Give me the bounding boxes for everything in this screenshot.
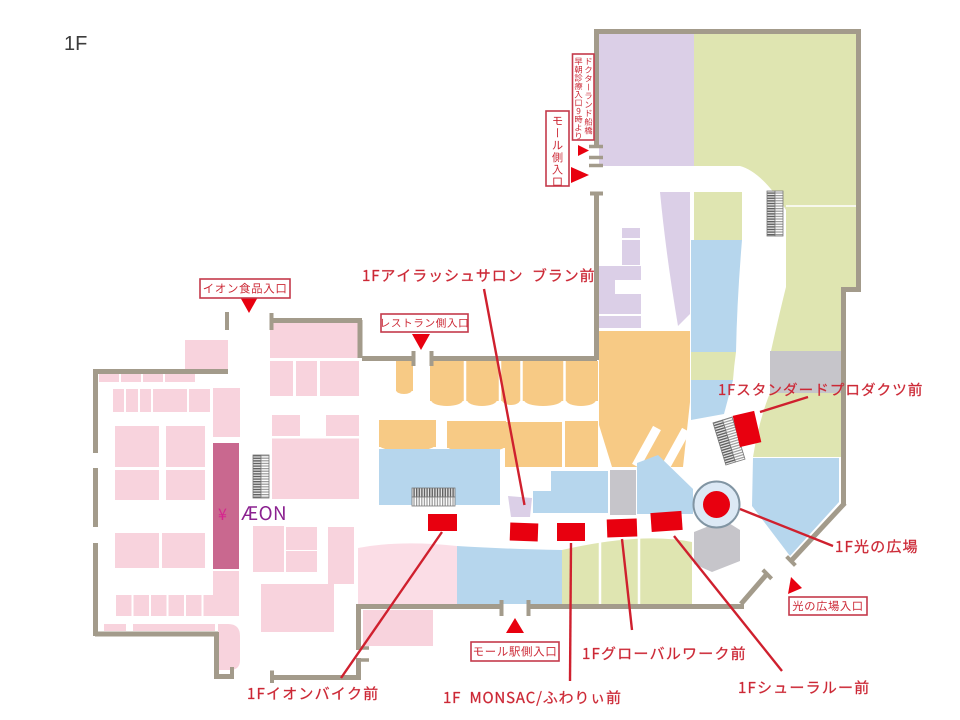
svg-text:1F: 1F	[64, 33, 87, 55]
